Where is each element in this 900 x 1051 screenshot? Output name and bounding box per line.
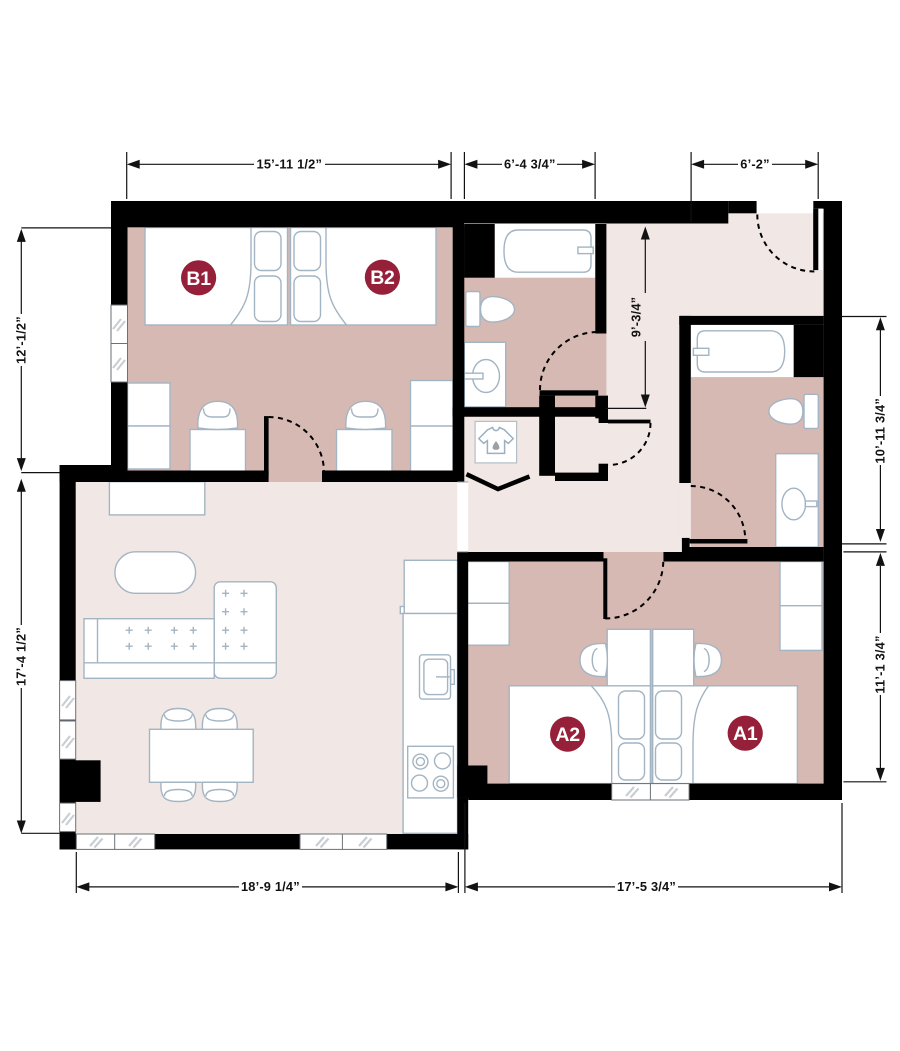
svg-text:6’-4 3/4”: 6’-4 3/4” xyxy=(504,157,556,172)
svg-text:6’-2”: 6’-2” xyxy=(740,157,769,172)
svg-text:A2: A2 xyxy=(555,724,580,746)
svg-text:10’-11 3/4”: 10’-11 3/4” xyxy=(872,398,887,464)
svg-text:B2: B2 xyxy=(370,267,395,289)
svg-text:18’-9 1/4”: 18’-9 1/4” xyxy=(241,879,300,894)
svg-text:B1: B1 xyxy=(186,268,211,290)
svg-text:17’-4 1/2”: 17’-4 1/2” xyxy=(13,627,28,686)
svg-text:17’-5 3/4”: 17’-5 3/4” xyxy=(617,879,676,894)
svg-text:15’-11 1/2”: 15’-11 1/2” xyxy=(257,157,323,172)
svg-text:9’-3/4”: 9’-3/4” xyxy=(628,297,643,338)
svg-text:A1: A1 xyxy=(733,723,758,745)
svg-text:11’-1 3/4”: 11’-1 3/4” xyxy=(872,635,887,693)
svg-text:12’-1/2”: 12’-1/2” xyxy=(13,316,28,364)
